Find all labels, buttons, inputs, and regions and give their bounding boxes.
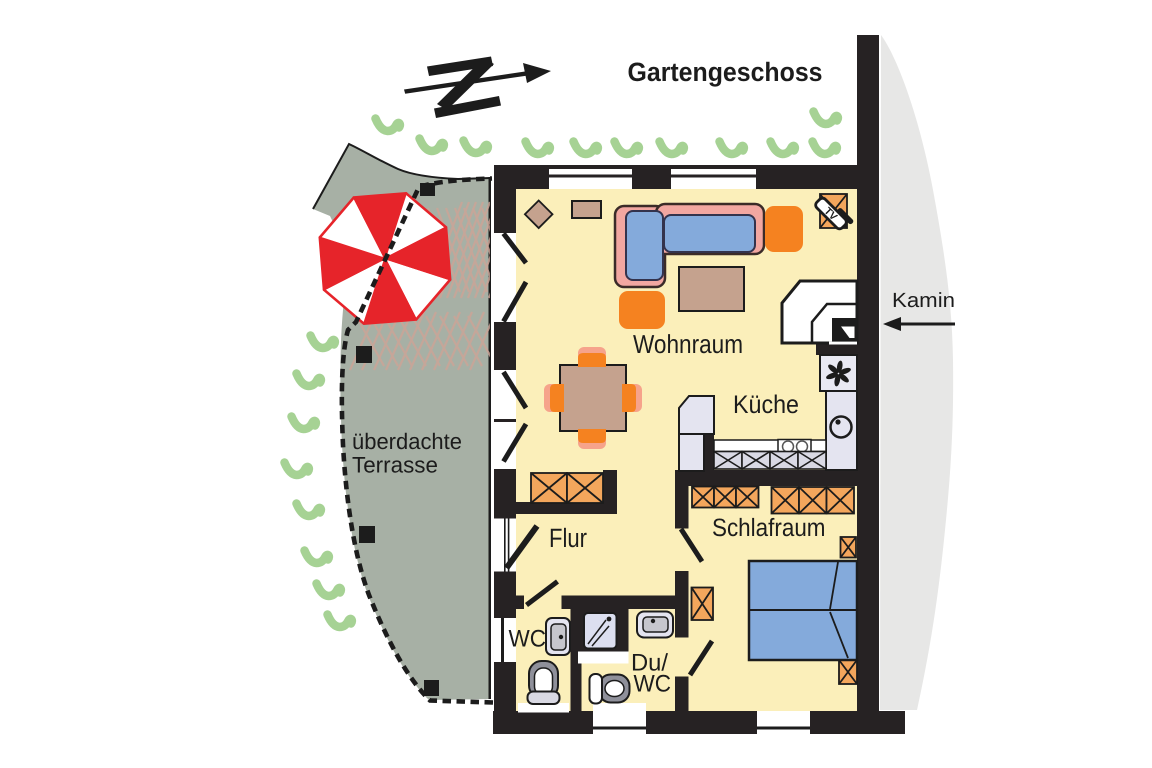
svg-text:WC: WC [509,626,547,653]
svg-text:Terrasse: Terrasse [352,453,438,478]
svg-text:überdachte: überdachte [352,429,462,454]
svg-text:Flur: Flur [549,523,587,553]
svg-text:Küche: Küche [733,391,799,419]
svg-text:Gartengeschoss: Gartengeschoss [628,57,823,87]
svg-text:Schlafraum: Schlafraum [712,514,826,542]
svg-text:Kamin: Kamin [892,289,955,312]
svg-text:WC: WC [634,671,672,698]
svg-text:Wohnraum: Wohnraum [633,329,743,359]
